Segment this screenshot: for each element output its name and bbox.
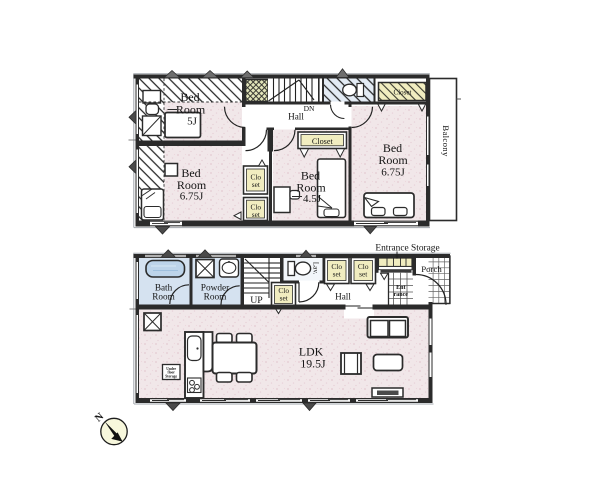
svg-text:Room: Room (204, 293, 227, 303)
svg-text:set: set (252, 210, 260, 219)
svg-text:Ent: Ent (396, 285, 405, 291)
svg-text:5J: 5J (187, 116, 198, 128)
svg-text:Entrance Storage: Entrance Storage (375, 244, 439, 254)
svg-text:19.5J: 19.5J (300, 357, 326, 371)
svg-text:Room: Room (152, 292, 174, 302)
svg-text:Porch: Porch (421, 264, 442, 274)
svg-text:Lav.: Lav. (312, 262, 320, 275)
svg-text:6.75J: 6.75J (381, 167, 405, 179)
svg-text:DN: DN (304, 104, 315, 113)
svg-text:Hall: Hall (288, 112, 304, 122)
svg-text:Hall: Hall (335, 292, 351, 302)
svg-text:6.75J: 6.75J (180, 191, 204, 203)
svg-text:Storage: Storage (165, 374, 177, 378)
svg-text:Balcony: Balcony (441, 125, 451, 157)
svg-text:UP: UP (250, 295, 263, 306)
svg-text:4.5J: 4.5J (303, 193, 322, 205)
svg-text:set: set (359, 270, 367, 279)
svg-text:Room: Room (176, 103, 206, 117)
svg-text:set: set (333, 270, 341, 279)
svg-text:Closet: Closet (394, 89, 412, 97)
svg-text:Closet: Closet (312, 137, 334, 146)
svg-text:rance: rance (394, 292, 409, 298)
svg-text:set: set (280, 294, 288, 303)
svg-text:set: set (252, 180, 260, 189)
svg-text:Room: Room (378, 153, 408, 167)
